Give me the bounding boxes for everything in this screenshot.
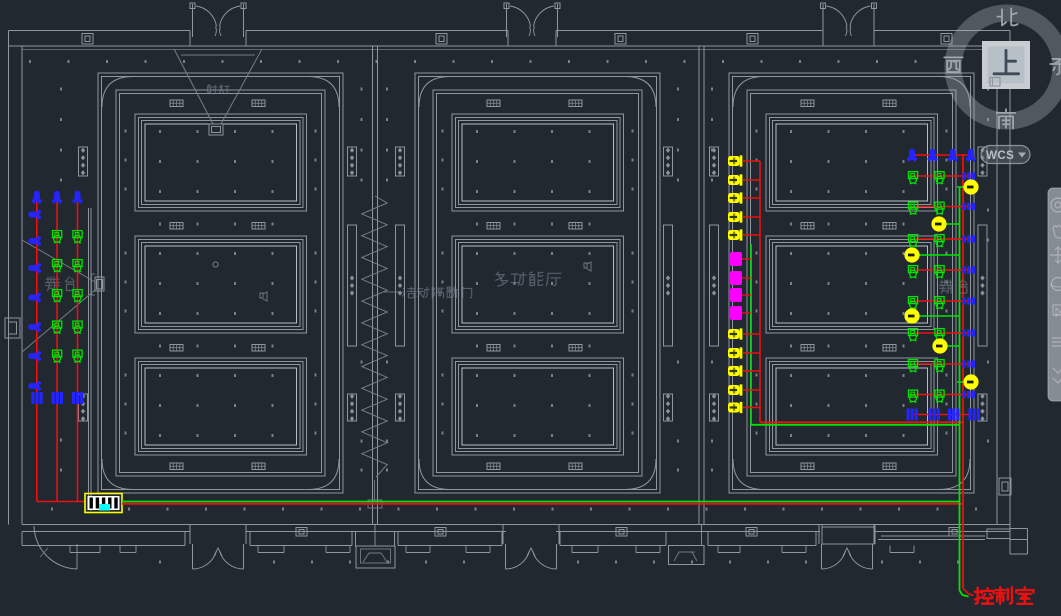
svg-text:WCS: WCS: [986, 150, 1014, 162]
